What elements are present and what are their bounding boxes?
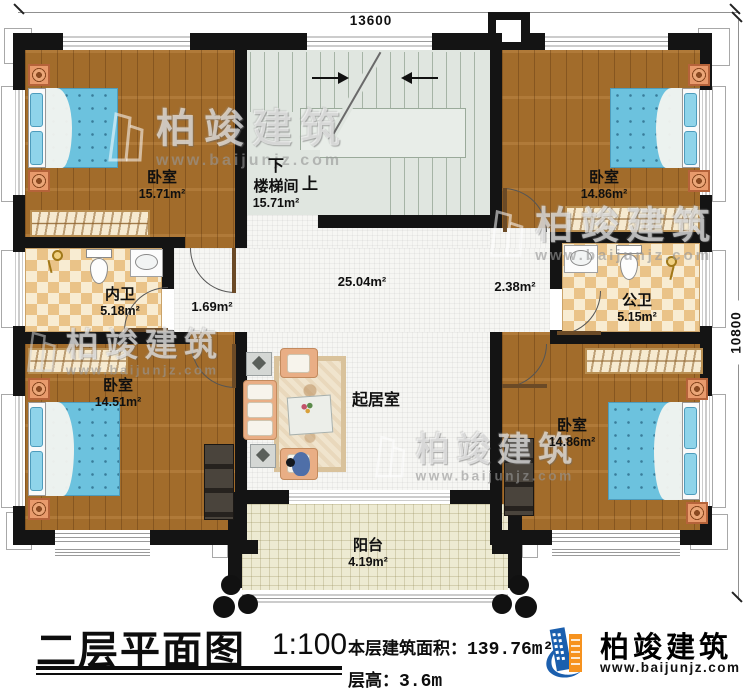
room-name: 阳台 — [318, 538, 418, 555]
stair-arrow-line — [412, 77, 438, 79]
room-name: 楼梯间 — [226, 179, 326, 196]
room-area: 4.19m² — [318, 555, 418, 570]
floor-plan-page: 13600 10800 — [0, 0, 750, 692]
window — [700, 252, 712, 326]
room-label-bedroom-bottom-left: 卧室 14.51m² — [68, 378, 168, 410]
wall-segment — [318, 215, 502, 228]
window — [545, 33, 668, 50]
floor-area-label: 本层建筑面积： — [348, 639, 467, 658]
window-sill-box — [712, 250, 726, 328]
room-label-staircase: 楼梯间 15.71m² — [226, 179, 326, 211]
wall-segment — [13, 33, 25, 90]
bed-pillow — [684, 131, 697, 165]
stair-landing — [300, 108, 466, 158]
wall-segment — [560, 232, 700, 243]
toilet-tank — [616, 245, 642, 254]
window — [63, 33, 190, 50]
dresser — [204, 444, 234, 520]
stair-arrow-line — [312, 77, 338, 79]
nightstand — [28, 64, 50, 86]
balcony-column — [221, 575, 241, 595]
window-sill-box — [712, 394, 726, 508]
door-leaf — [503, 188, 507, 232]
balcony-column — [492, 594, 512, 614]
balcony-column — [515, 596, 537, 618]
nightstand — [686, 502, 708, 524]
floor-area-line: 本层建筑面积：139.76m² — [348, 634, 553, 660]
stair-arrow — [401, 72, 412, 84]
bed-pillow — [30, 407, 43, 447]
wall-segment — [490, 332, 502, 530]
room-label-living-room: 起居室 — [326, 392, 426, 410]
nightstand — [686, 378, 708, 400]
brand-website: www.baijunjz.com — [600, 660, 741, 675]
room-area: 15.71m² — [226, 196, 326, 211]
room-area: 14.86m² — [522, 435, 622, 450]
wardrobe — [565, 206, 700, 232]
balcony-railing — [242, 592, 508, 605]
room-name: 起居室 — [326, 392, 426, 410]
wall-segment — [228, 540, 258, 554]
wall-segment — [190, 33, 307, 50]
wall-segment — [492, 540, 522, 554]
wardrobe — [28, 348, 128, 374]
room-label-bedroom-bottom-right: 卧室 14.86m² — [522, 418, 622, 450]
sofa-cushion — [247, 384, 273, 400]
wall-segment — [247, 490, 289, 504]
door-leaf — [232, 344, 236, 388]
nightstand — [28, 170, 50, 192]
wall-segment — [25, 237, 185, 248]
window — [55, 530, 150, 545]
window — [13, 90, 25, 195]
hall-area-center: 25.04m² — [322, 274, 402, 289]
sink-basin — [135, 254, 158, 270]
wall-segment — [527, 33, 545, 50]
wardrobe — [30, 210, 150, 237]
shower-head — [666, 256, 677, 267]
bed-pillow — [30, 131, 43, 165]
sofa-cushion — [247, 420, 273, 436]
room-label-bedroom-top-right: 卧室 14.86m² — [554, 170, 654, 202]
dimension-top-label: 13600 — [336, 13, 406, 28]
room-name: 卧室 — [112, 170, 212, 187]
wall-segment — [13, 332, 190, 344]
nightstand — [28, 498, 50, 520]
room-name: 公卫 — [587, 293, 687, 310]
window-sill-lines — [552, 547, 680, 558]
armchair-cushion — [287, 354, 310, 373]
window — [700, 396, 712, 506]
brand-logo-svg — [540, 620, 592, 680]
nightstand — [28, 378, 50, 400]
wall-segment — [680, 530, 712, 545]
window-sill-box — [712, 86, 726, 202]
window — [13, 252, 25, 326]
floor-height-value: 3.6m — [399, 672, 442, 692]
window — [307, 33, 432, 50]
wall-segment — [432, 33, 492, 50]
door-leaf — [124, 328, 168, 332]
bed-pillow — [30, 93, 43, 127]
window-sill-lines — [55, 547, 150, 558]
room-area: 15.71m² — [112, 187, 212, 202]
table-flowers — [300, 402, 314, 414]
floor-height-line: 层高：3.6m — [348, 666, 442, 692]
wall-segment — [13, 195, 25, 252]
wall-segment — [162, 237, 174, 289]
bed-blanket — [656, 88, 682, 168]
room-area: 5.18m² — [70, 304, 170, 319]
wall-segment — [13, 530, 55, 545]
balcony-column — [213, 596, 235, 618]
stair-down-label: 下 — [268, 152, 284, 176]
room-label-balcony: 阳台 4.19m² — [318, 538, 418, 570]
dresser — [504, 438, 534, 516]
wall-segment — [700, 195, 712, 252]
bed-pillow — [684, 407, 697, 449]
brand-logo-icon — [540, 620, 592, 685]
stair-arrow — [338, 72, 349, 84]
sofa-cushion — [247, 402, 273, 418]
wall-segment — [450, 490, 490, 504]
dimension-right-label: 10800 — [729, 301, 744, 365]
room-label-bedroom-top-left: 卧室 15.71m² — [112, 170, 212, 202]
balcony-column — [238, 594, 258, 614]
wall-segment — [490, 33, 502, 228]
bed-blanket — [654, 402, 682, 500]
toilet-tank — [86, 249, 112, 258]
wardrobe — [585, 348, 703, 374]
nightstand — [688, 64, 710, 86]
dimension-tick — [731, 591, 742, 602]
room-area: 14.86m² — [554, 187, 654, 202]
logo-building-orange — [569, 634, 582, 672]
balcony-sliding-door — [289, 490, 450, 504]
hall-area-left: 1.69m² — [172, 299, 252, 314]
sink-basin — [570, 250, 592, 266]
room-label-bathroom-private: 内卫 5.18m² — [70, 287, 170, 319]
wall-segment — [235, 50, 247, 248]
title-underline — [36, 673, 342, 675]
bed-pillow — [684, 453, 697, 495]
title-underline — [36, 666, 342, 670]
room-area: 5.15m² — [587, 310, 687, 325]
shower-head — [52, 250, 63, 261]
drawing-scale: 1:100 — [272, 628, 347, 662]
bed-pillow — [30, 451, 43, 491]
window — [552, 530, 680, 545]
logo-building-blue — [550, 627, 572, 671]
door-leaf — [502, 384, 547, 388]
room-label-bathroom-public: 公卫 5.15m² — [587, 293, 687, 325]
room-name: 卧室 — [68, 378, 168, 395]
floor-height-label: 层高： — [348, 671, 399, 690]
door-leaf — [557, 331, 601, 335]
bed-pillow — [684, 93, 697, 127]
nightstand — [688, 170, 710, 192]
room-name: 卧室 — [522, 418, 622, 435]
person-head — [286, 458, 295, 467]
room-name: 内卫 — [70, 287, 170, 304]
window — [13, 396, 25, 506]
balcony-column — [509, 575, 529, 595]
hall-area-right: 2.38m² — [475, 279, 555, 294]
door-leaf — [232, 248, 236, 293]
room-area: 14.51m² — [68, 395, 168, 410]
room-name: 卧室 — [554, 170, 654, 187]
